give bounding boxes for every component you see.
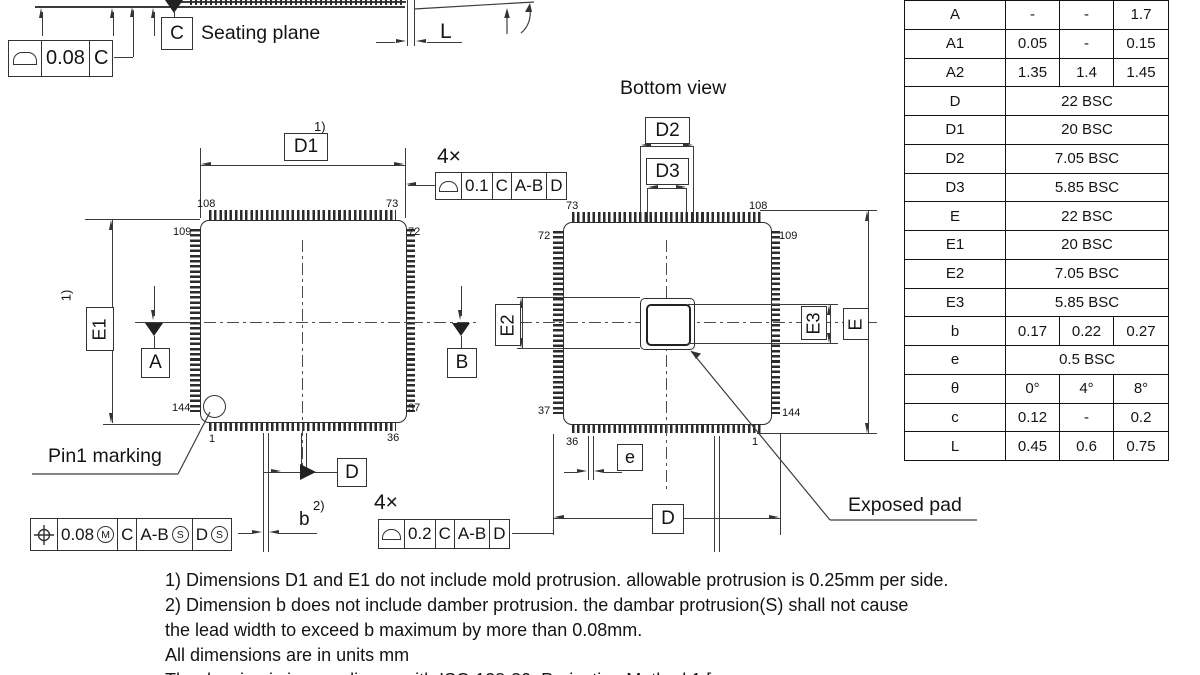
b-ext-line (263, 433, 264, 552)
arrowhead (416, 39, 426, 43)
d3-dim-label: D3 (655, 161, 679, 183)
pin-number: 108 (197, 198, 215, 210)
table-row: A21.351.41.45 (905, 59, 1168, 88)
datum-c-box: C (161, 17, 193, 50)
exposed-pad-inner (646, 304, 691, 346)
datum-c-label: C (170, 23, 184, 45)
datum-b-stem (461, 336, 462, 348)
e1-dim-box: E1 (86, 307, 114, 351)
cell-max: 0.75 (1114, 432, 1168, 460)
arrowhead (827, 305, 831, 315)
cell-typ: 0.6 (1060, 432, 1114, 460)
cell-max: 8° (1114, 375, 1168, 403)
modifier-s-icon: S (211, 526, 228, 543)
lead-ext-line (714, 436, 715, 552)
cell-max: 0.2 (1114, 404, 1168, 432)
pin-number: 37 (538, 405, 550, 417)
d1-dim-line (201, 165, 405, 166)
cell-symbol: D (905, 87, 1006, 115)
table-row: e0.5 BSC (905, 346, 1168, 375)
cell-symbol: θ (905, 375, 1006, 403)
cell-max: 0.27 (1114, 317, 1168, 345)
note-line-5: The drawing is in compliance with ISO 12… (165, 668, 948, 675)
d1-note-sup: 1) (314, 119, 326, 134)
arrowhead (396, 39, 406, 43)
e-pitch-stem (564, 472, 577, 473)
profile2-ref3: D (490, 520, 508, 548)
position-fcf: 0.08 M C A-B S D S (30, 518, 232, 551)
e-dim-box: E (843, 308, 869, 340)
arrowhead (201, 162, 211, 166)
d-ext-line (780, 434, 781, 535)
cell-span-value: 5.85 BSC (1006, 174, 1168, 202)
b-note-sup: 2) (313, 498, 325, 513)
pin1-marking-label: Pin1 marking (48, 445, 162, 468)
cell-symbol: A2 (905, 59, 1006, 87)
lead-tips-hatch (190, 0, 405, 5)
datum-a-stem (154, 336, 155, 348)
arrowhead (110, 8, 114, 18)
profile-ref1: C (493, 173, 512, 199)
cell-symbol: E1 (905, 231, 1006, 259)
arrowhead (865, 423, 869, 433)
modifier-s-icon: S (172, 526, 189, 543)
arrowhead (394, 162, 404, 166)
e3-ext-line (688, 343, 838, 344)
position-ref1: C (118, 519, 137, 550)
arrowhead (39, 8, 43, 18)
table-row: A--1.7 (905, 1, 1168, 30)
exposed-pad-label: Exposed pad (848, 494, 962, 517)
cell-symbol: A (905, 1, 1006, 29)
position-value: 0.08 (61, 525, 94, 545)
arrowhead (151, 310, 155, 320)
cell-max: 1.7 (1114, 1, 1168, 29)
note-line-2: 2) Dimension b does not include damber p… (165, 593, 948, 618)
cell-symbol: E (905, 202, 1006, 230)
cell-span-value: 7.05 BSC (1006, 145, 1168, 173)
cell-typ: - (1060, 404, 1114, 432)
centerline-vertical (302, 240, 303, 470)
position-ref3: D (196, 525, 208, 545)
table-row: E22 BSC (905, 202, 1168, 231)
profile-symbol-icon (379, 520, 405, 548)
pin-number: 73 (386, 198, 398, 210)
flatness-fcf: 0.08 C (8, 40, 113, 77)
arrowhead (683, 143, 693, 147)
profile-fcf2-count: 4× (374, 491, 398, 515)
datum-d-box: D (337, 458, 367, 487)
pin-number: 144 (172, 402, 190, 414)
note-line-3: the lead width to exceed b maximum by mo… (165, 618, 948, 643)
pin-number: 37 (408, 402, 420, 414)
cell-span-value: 20 BSC (1006, 231, 1168, 259)
pin-number: 36 (387, 432, 399, 444)
arrowhead (865, 211, 869, 221)
e-pitch-stem (604, 472, 622, 473)
table-row: D120 BSC (905, 116, 1168, 145)
d2-dim-label: D2 (655, 120, 679, 142)
pin-number: 109 (173, 226, 191, 238)
cell-span-value: 22 BSC (1006, 87, 1168, 115)
arrowhead (458, 310, 462, 320)
arrowhead (271, 469, 281, 473)
cell-min: 1.35 (1006, 59, 1060, 87)
cell-symbol: E3 (905, 289, 1006, 317)
d2-dim-box: D2 (645, 117, 690, 144)
package-drawing-canvas: C Seating plane 0.08 C L D1 1) 4× 0.1 C … (0, 0, 1200, 675)
position-ref3-cell: D S (193, 519, 231, 550)
datum-a-box: A (141, 348, 170, 378)
arrowhead (151, 8, 155, 18)
pin-number: 1 (209, 433, 215, 445)
position-value-cell: 0.08 M (58, 519, 118, 550)
cell-symbol: D2 (905, 145, 1006, 173)
table-row: b0.170.220.27 (905, 317, 1168, 346)
arrowhead (252, 530, 262, 534)
cell-symbol: e (905, 346, 1006, 374)
cell-max: 1.45 (1114, 59, 1168, 87)
pin-number: 109 (779, 230, 797, 242)
arrowhead (676, 185, 686, 189)
flatness-value: 0.08 (42, 41, 90, 76)
profile-ref2: A-B (512, 173, 547, 199)
arrowhead (827, 333, 831, 343)
arrowhead (109, 413, 113, 423)
profile2-value: 0.2 (405, 520, 436, 548)
cell-symbol: D1 (905, 116, 1006, 144)
lead-tip-line (407, 0, 408, 46)
datum-b-label: B (456, 352, 469, 374)
e3-dim-box: E3 (801, 306, 827, 340)
e2-ext-line (517, 297, 640, 298)
b-dim-line (238, 533, 252, 534)
cell-symbol: E2 (905, 260, 1006, 288)
datum-d-label: D (345, 462, 359, 484)
position-symbol-icon (31, 519, 58, 550)
flatness-datum: C (90, 41, 112, 76)
arrowhead (406, 182, 416, 186)
e2-dim-box: E2 (495, 304, 521, 346)
datum-b-box: B (447, 348, 477, 378)
e1-dim-label: E1 (90, 318, 111, 340)
profile2-ref1: C (436, 520, 455, 548)
cell-span-value: 20 BSC (1006, 116, 1168, 144)
e-ext-line (760, 210, 877, 211)
e1-ext-line (85, 219, 200, 220)
pin-number: 73 (566, 200, 578, 212)
arrowhead (769, 515, 779, 519)
cell-typ: - (1060, 1, 1114, 29)
cell-typ: 1.4 (1060, 59, 1114, 87)
cell-min: 0.45 (1006, 432, 1060, 460)
arrowhead (554, 515, 564, 519)
d-ext-line (553, 434, 554, 535)
e-dim-label: E (845, 318, 866, 330)
pin-number: 36 (566, 436, 578, 448)
position-ref2: A-B (140, 525, 168, 545)
modifier-m-icon: M (97, 526, 114, 543)
fcf-leader (133, 10, 134, 57)
cell-min: 0.05 (1006, 30, 1060, 58)
arrowhead (109, 220, 113, 230)
d-dim-label: D (661, 508, 675, 530)
e-pitch-box: e (617, 444, 643, 471)
arrowhead (130, 7, 134, 17)
table-row: L0.450.60.75 (905, 432, 1168, 460)
e2-dim-label: E2 (498, 314, 519, 336)
profile-ref3: D (547, 173, 565, 199)
note-line-1: 1) Dimensions D1 and E1 do not include m… (165, 568, 948, 593)
centerline-vertical (666, 240, 667, 490)
table-row: D27.05 BSC (905, 145, 1168, 174)
seating-plane-label: Seating plane (201, 22, 320, 45)
flatness-symbol-icon (9, 41, 42, 76)
cell-typ: - (1060, 30, 1114, 58)
table-row: D35.85 BSC (905, 174, 1168, 203)
e3-dim-label: E3 (804, 312, 825, 334)
table-row: E35.85 BSC (905, 289, 1168, 318)
pin-comb-top (572, 212, 761, 222)
table-row: A10.05-0.15 (905, 30, 1168, 59)
cell-span-value: 7.05 BSC (1006, 260, 1168, 288)
cell-symbol: b (905, 317, 1006, 345)
cell-span-value: 0.5 BSC (1006, 346, 1168, 374)
table-row: D22 BSC (905, 87, 1168, 116)
profile-value: 0.1 (462, 173, 493, 199)
datum-d-triangle (300, 464, 316, 480)
profile-fcf-count: 4× (437, 145, 461, 169)
pin-number: 72 (538, 230, 550, 242)
table-row: c0.12-0.2 (905, 404, 1168, 433)
profile-fcf2: 0.2 C A-B D (378, 519, 510, 549)
b-dim-line (279, 533, 317, 534)
datum-a-triangle (145, 323, 163, 336)
arrowhead (641, 143, 651, 147)
note-line-4: All dimensions are in units mm (165, 643, 948, 668)
e3-ext-line (688, 304, 838, 305)
e2-ext-line (517, 348, 640, 349)
profile-fcf: 0.1 C A-B D (435, 172, 567, 200)
b-dim-label: b (299, 509, 310, 531)
table-row: E27.05 BSC (905, 260, 1168, 289)
cell-symbol: L (905, 432, 1006, 460)
e-pitch-label: e (625, 447, 635, 468)
table-row: θ0°4°8° (905, 375, 1168, 404)
profile-symbol-icon (436, 173, 462, 199)
profile2-ref2: A-B (455, 520, 490, 548)
cell-symbol: A1 (905, 30, 1006, 58)
d1-dim-box: D1 (284, 133, 328, 161)
cell-typ: 0.22 (1060, 317, 1114, 345)
d3-dim-box: D3 (646, 158, 689, 185)
arrowhead (577, 469, 587, 473)
seating-plane-line (35, 6, 405, 8)
cell-symbol: c (905, 404, 1006, 432)
drawing-notes: 1) Dimensions D1 and E1 do not include m… (165, 568, 948, 675)
cell-max: 0.15 (1114, 30, 1168, 58)
cell-min: 0° (1006, 375, 1060, 403)
pin-comb-top (209, 210, 396, 220)
pin-comb-left (190, 229, 200, 412)
e-pitch-ext (593, 436, 594, 480)
position-ref2-cell: A-B S (137, 519, 192, 550)
bottom-view-title: Bottom view (620, 77, 726, 100)
profile-fcf2-leader (512, 533, 553, 534)
pin-number: 1 (752, 436, 758, 448)
arrowhead (594, 469, 604, 473)
e1-note-sup: 1) (58, 290, 73, 302)
e-ext-line (757, 433, 877, 434)
e1-ext-line (103, 424, 200, 425)
cell-span-value: 22 BSC (1006, 202, 1168, 230)
cell-min: - (1006, 1, 1060, 29)
d-dim-box: D (652, 504, 684, 534)
cell-span-value: 5.85 BSC (1006, 289, 1168, 317)
d1-dim-label: D1 (294, 136, 318, 158)
lead-ext-line (719, 436, 720, 552)
datum-b-triangle (452, 323, 470, 336)
pin-number: 108 (749, 200, 767, 212)
pin1-marking-circle (203, 395, 226, 418)
arrowhead (269, 530, 279, 534)
lead-tip-line (414, 0, 415, 46)
l-dim-label: L (440, 20, 452, 44)
pin-number: 72 (408, 226, 420, 238)
cell-typ: 4° (1060, 375, 1114, 403)
fcf-leader (114, 57, 133, 58)
l-dim-line (376, 42, 395, 43)
dimension-table: A--1.7 A10.05-0.15 A21.351.41.45 D22 BSC… (904, 0, 1169, 461)
pin-number: 144 (782, 407, 800, 419)
e-pitch-ext (588, 436, 589, 480)
arrowhead (648, 185, 658, 189)
cell-min: 0.17 (1006, 317, 1060, 345)
datum-a-label: A (149, 352, 162, 374)
cell-symbol: D3 (905, 174, 1006, 202)
cell-min: 0.12 (1006, 404, 1060, 432)
table-row: E120 BSC (905, 231, 1168, 260)
